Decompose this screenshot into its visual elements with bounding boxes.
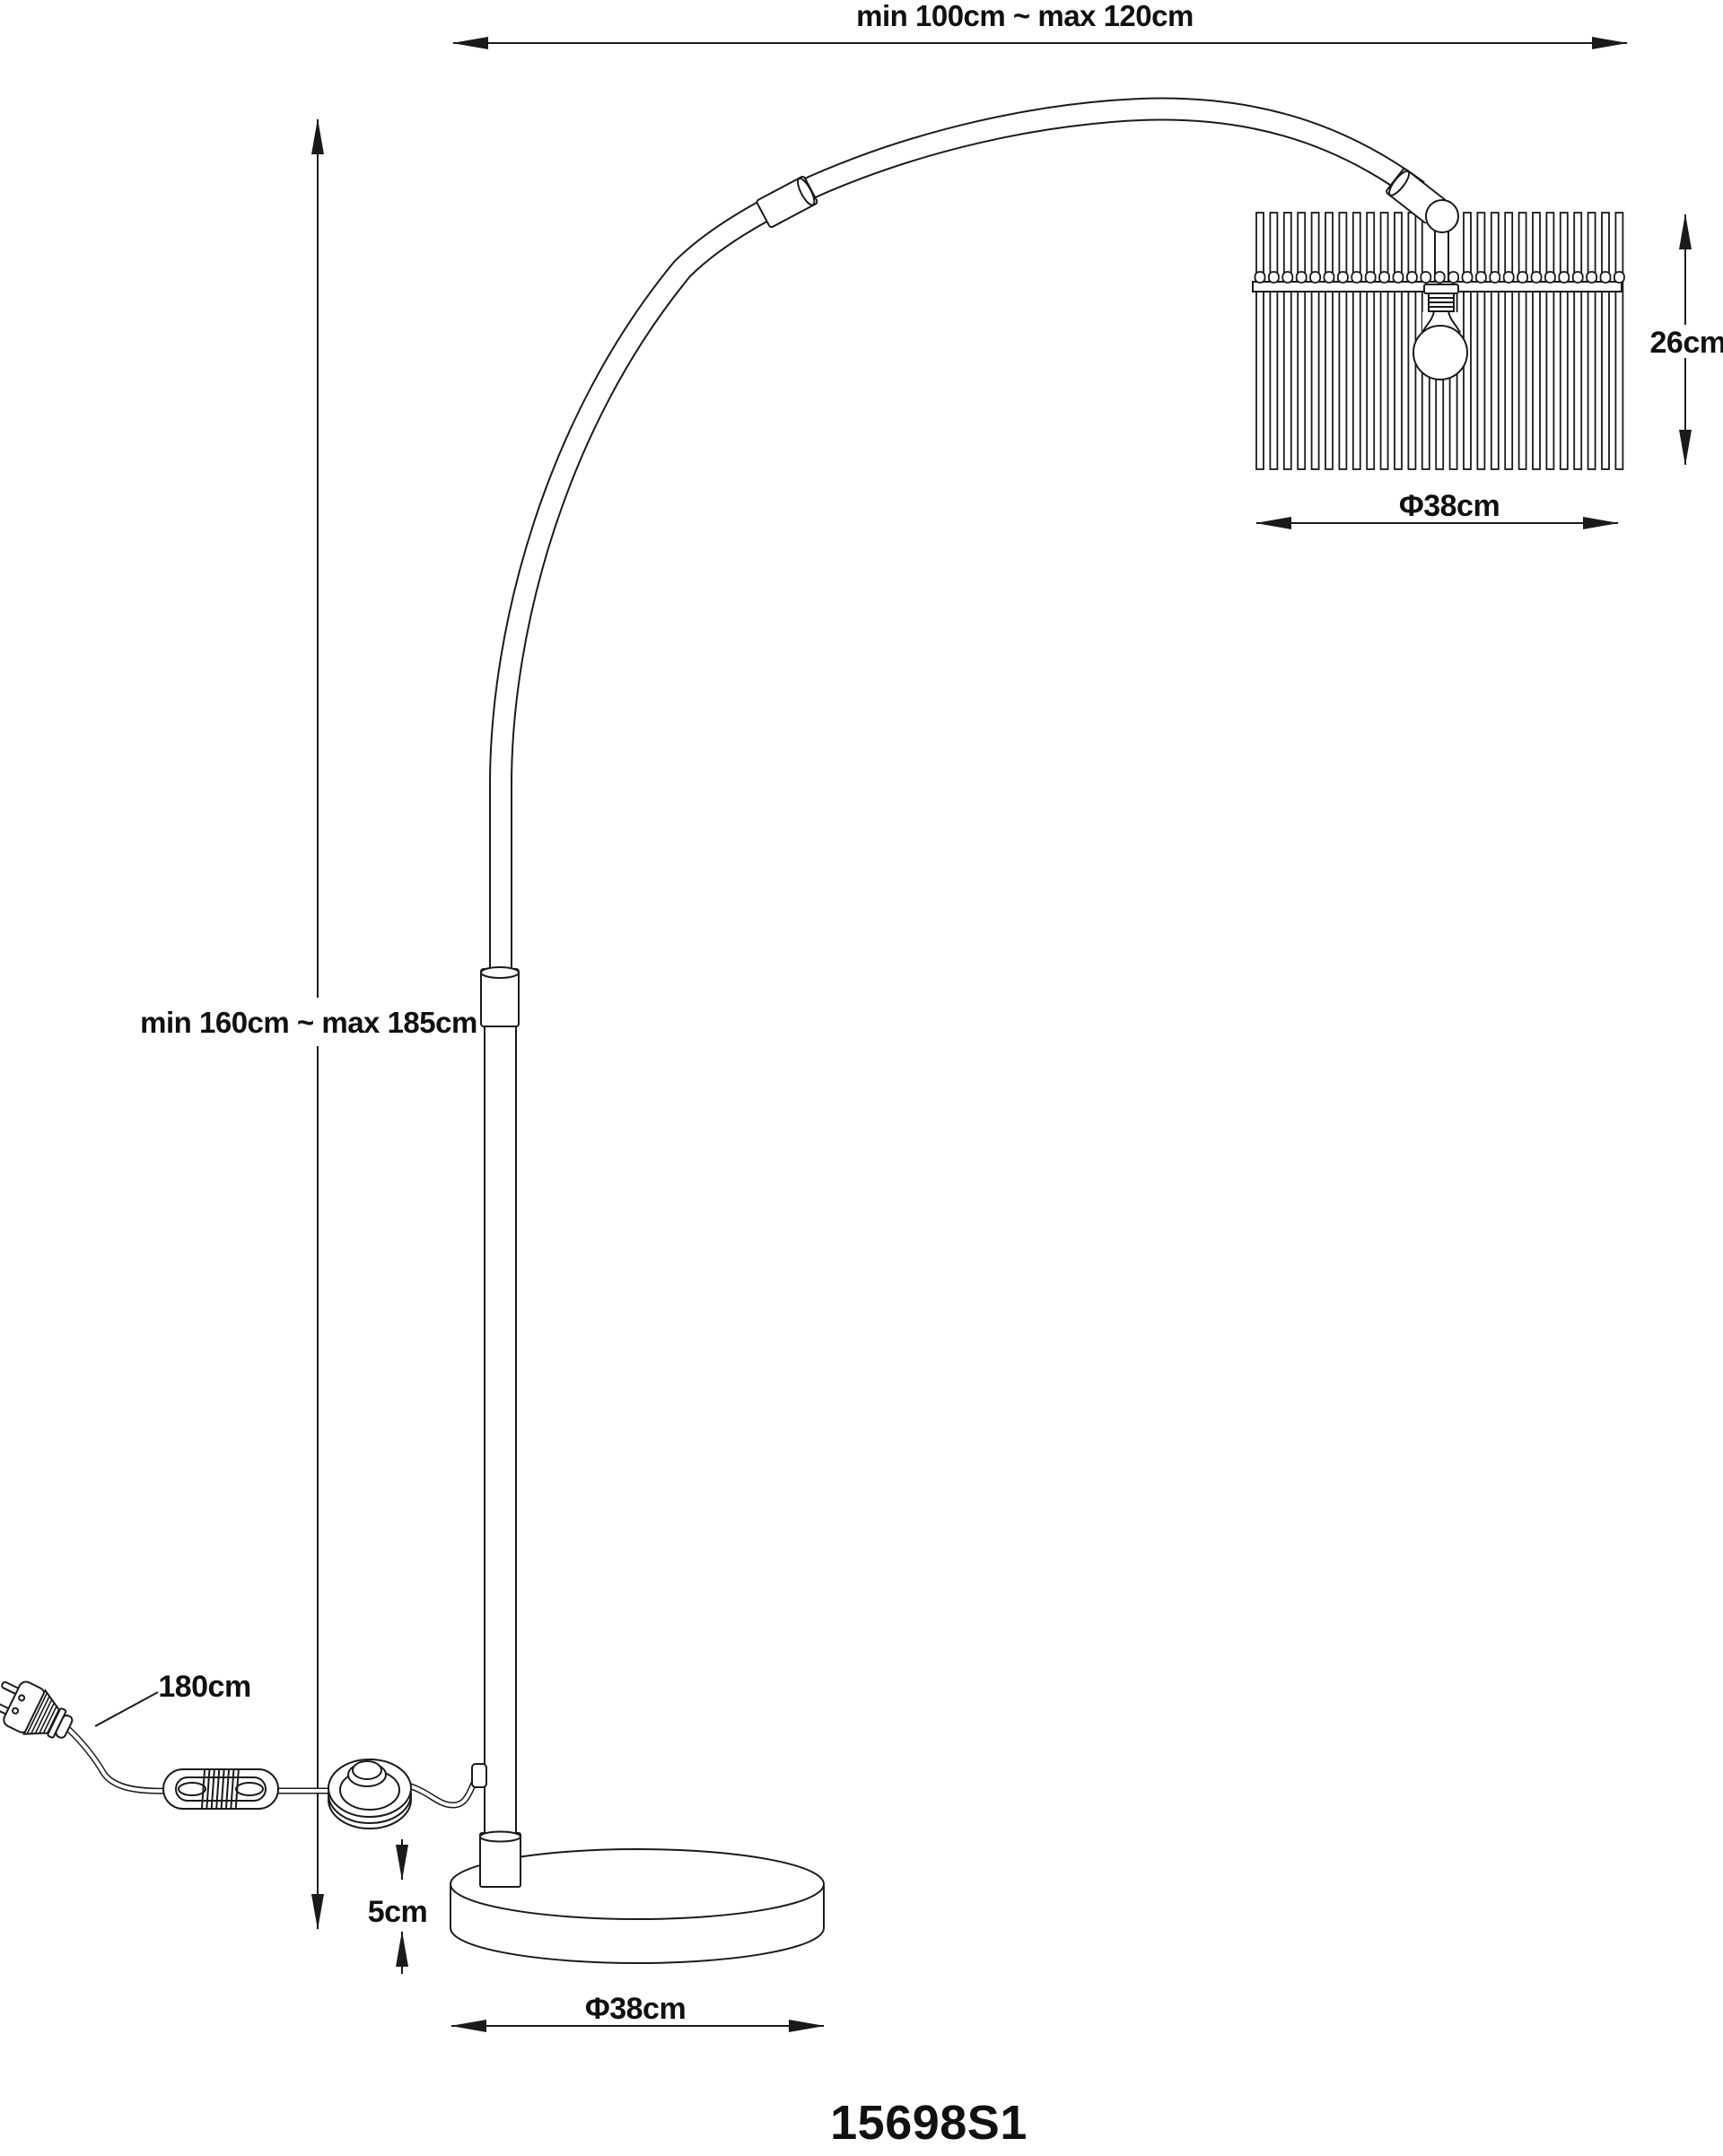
foot-switch — [328, 1759, 411, 1829]
base-diameter-label: Φ38cm — [585, 1992, 686, 2026]
cord-length-label: 180cm — [158, 1670, 250, 1704]
arm-reach-label: min 100cm ~ max 120cm — [856, 0, 1194, 32]
product-code: 15698S1 — [830, 2096, 1028, 2150]
cord-coil — [163, 1769, 278, 1809]
shade-height-label: 26cm — [1650, 326, 1723, 360]
lamp-arm — [501, 109, 1418, 974]
lamp-shade — [1253, 168, 1624, 469]
diagram-page: min 100cm ~ max 120cm min 160cm ~ max 18… — [0, 0, 1723, 2156]
cord-pole-connector — [472, 1764, 486, 1787]
cord-length-leader-line — [95, 1692, 158, 1726]
arm-elbow-joint — [1426, 200, 1458, 232]
pole-collar — [481, 967, 519, 1026]
pole-base-sleeve — [480, 1832, 520, 1888]
bulb-socket — [1424, 284, 1458, 311]
lamp-technical-drawing: min 100cm ~ max 120cm min 160cm ~ max 18… — [0, 0, 1723, 2156]
shade-beads — [1255, 272, 1624, 283]
base-height-label: 5cm — [368, 1895, 428, 1929]
arm-sleeve-joint — [757, 176, 818, 228]
lamp-height-label: min 160cm ~ max 185cm — [140, 1006, 477, 1039]
shade-diameter-label: Φ38cm — [1399, 489, 1500, 523]
power-plug — [0, 1672, 79, 1750]
lamp-pole — [485, 1023, 516, 1835]
